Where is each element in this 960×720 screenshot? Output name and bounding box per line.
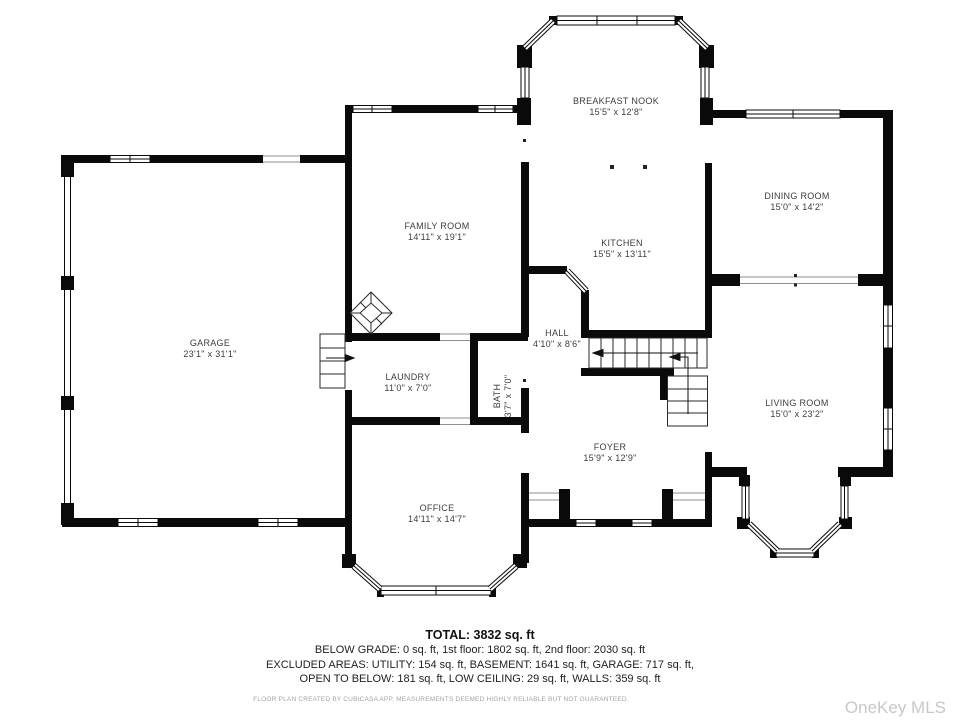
summary-block: TOTAL: 3832 sq. ft BELOW GRADE: 0 sq. ft… [0,628,960,703]
watermark: OneKey MLS [845,698,946,718]
garage-door-line [65,157,71,520]
room-name: FOYER [583,442,636,453]
fireplace-icon [350,292,392,334]
room-label-family-room: FAMILY ROOM 14'11" x 19'1" [405,221,470,243]
total-area: TOTAL: 3832 sq. ft [0,628,960,643]
windows [110,16,893,595]
room-name: LIVING ROOM [765,398,828,409]
staircase-main [589,338,708,426]
room-dims: 14'11" x 19'1" [405,232,470,243]
disclaimer: FLOOR PLAN CREATED BY CUBICASA APP. MEAS… [0,696,921,703]
floor-plan-page: BREAKFAST NOOK 15'5" x 12'8" DINING ROOM… [0,0,960,720]
room-label-office: OFFICE 14'11" x 14'7" [408,503,466,525]
room-dims: 23'1" x 31'1" [183,349,236,360]
room-label-bath: BATH 3'7" x 7'0" [492,375,514,418]
room-label-foyer: FOYER 15'9" x 12'9" [583,442,636,464]
room-label-laundry: LAUNDRY 11'0" x 7'0" [384,372,431,394]
room-dims: 11'0" x 7'0" [384,383,431,394]
room-label-breakfast-nook: BREAKFAST NOOK 15'5" x 12'8" [573,96,659,118]
room-name: HALL [533,328,581,339]
room-name: KITCHEN [593,238,651,249]
room-dims: 15'5" x 12'8" [573,107,659,118]
room-name: BATH [492,375,503,418]
room-label-hall: HALL 4'10" x 8'6" [533,328,581,350]
room-dims: 15'5" x 13'11" [593,249,651,260]
floor-plan-svg [0,0,960,720]
summary-line-3: OPEN TO BELOW: 181 sq. ft, LOW CEILING: … [0,672,960,687]
room-dims: 3'7" x 7'0" [503,375,514,418]
room-dims: 4'10" x 8'6" [533,339,581,350]
room-name: FAMILY ROOM [405,221,470,232]
staircase-garage [320,334,345,388]
room-dims: 15'0" x 14'2" [764,202,829,213]
room-dims: 15'0" x 23'2" [765,409,828,420]
summary-line-1: BELOW GRADE: 0 sq. ft, 1st floor: 1802 s… [0,643,960,658]
room-label-dining-room: DINING ROOM 15'0" x 14'2" [764,191,829,213]
room-label-kitchen: KITCHEN 15'5" x 13'11" [593,238,651,260]
summary-line-2: EXCLUDED AREAS: UTILITY: 154 sq. ft, BAS… [0,658,960,673]
walls [61,16,893,597]
room-name: BREAKFAST NOOK [573,96,659,107]
room-name: OFFICE [408,503,466,514]
room-dims: 14'11" x 14'7" [408,514,466,525]
room-label-living-room: LIVING ROOM 15'0" x 23'2" [765,398,828,420]
room-name: GARAGE [183,338,236,349]
room-dims: 15'9" x 12'9" [583,453,636,464]
room-name: DINING ROOM [764,191,829,202]
room-label-garage: GARAGE 23'1" x 31'1" [183,338,236,360]
room-name: LAUNDRY [384,372,431,383]
